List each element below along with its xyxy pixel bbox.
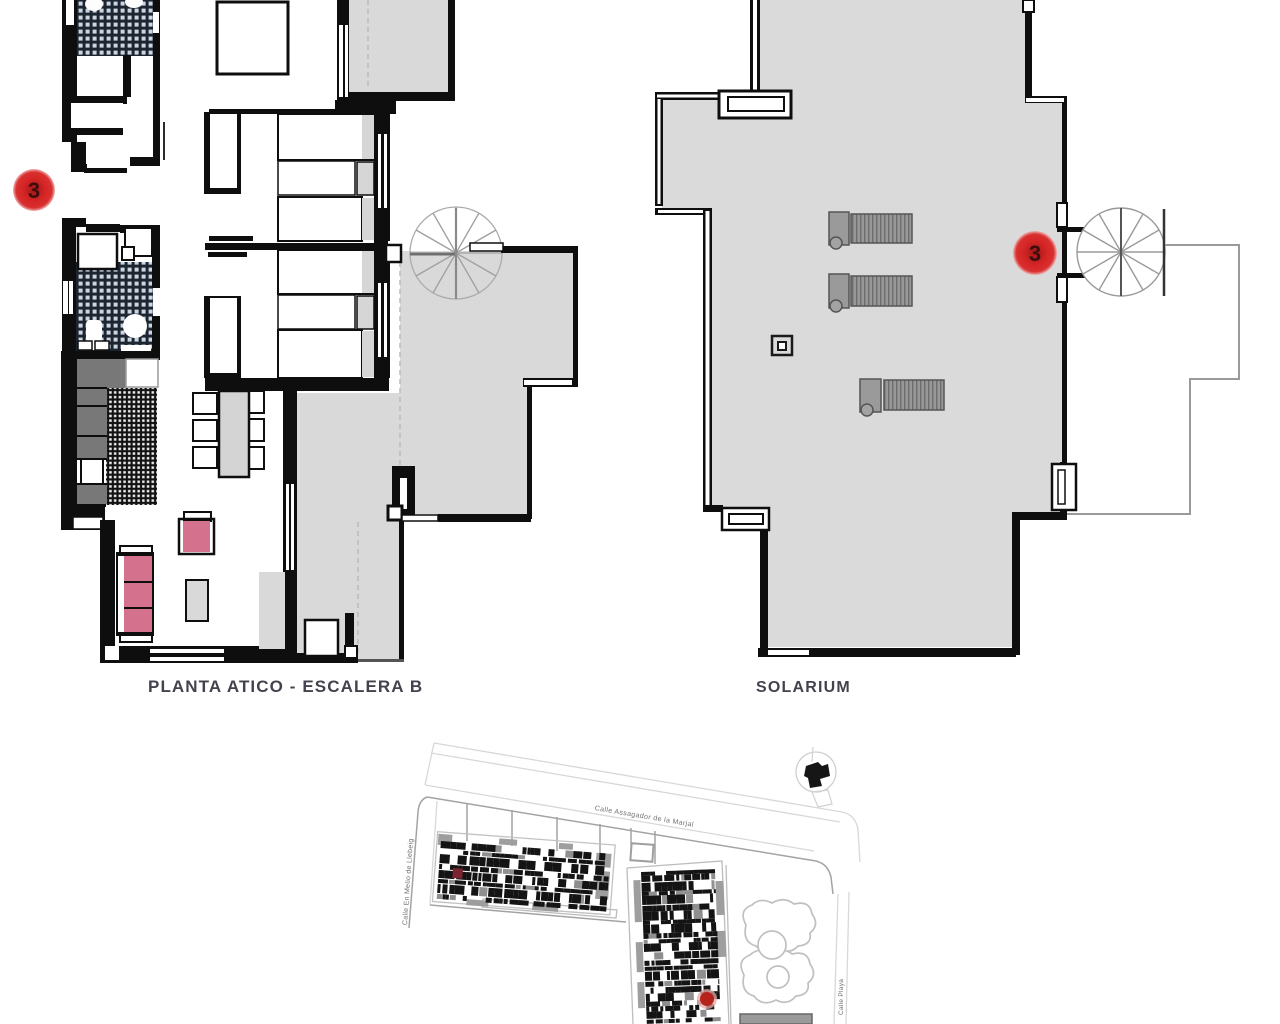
svg-text:3: 3 (1029, 241, 1041, 266)
svg-text:PLANTA ATICO - ESCALERA B: PLANTA ATICO - ESCALERA B (148, 677, 423, 696)
svg-text:SOLARIUM: SOLARIUM (756, 679, 851, 696)
svg-text:Calle Playa: Calle Playa (838, 979, 845, 1015)
svg-text:3: 3 (28, 178, 40, 203)
